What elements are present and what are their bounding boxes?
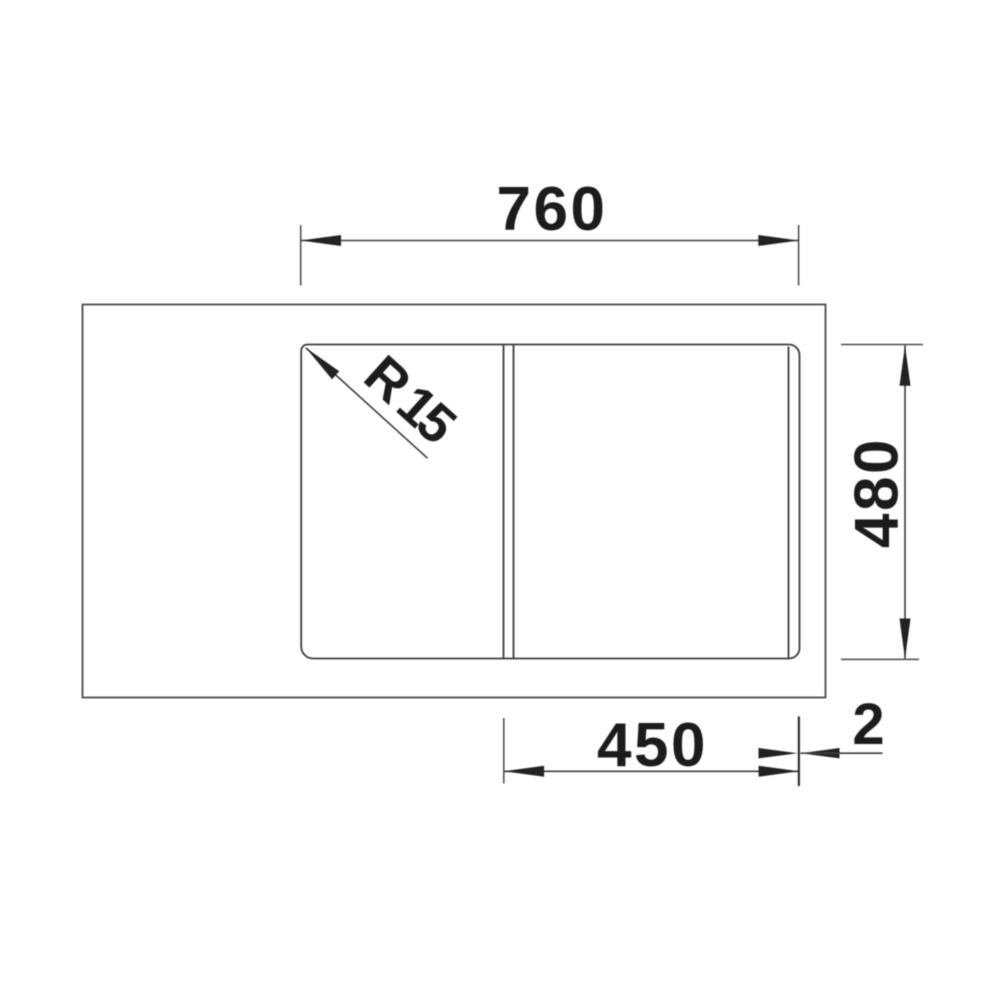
svg-text:2: 2	[852, 692, 884, 757]
svg-text:R15: R15	[353, 344, 468, 456]
svg-text:760: 760	[497, 175, 608, 244]
svg-text:480: 480	[843, 437, 912, 548]
svg-text:450: 450	[597, 711, 708, 780]
